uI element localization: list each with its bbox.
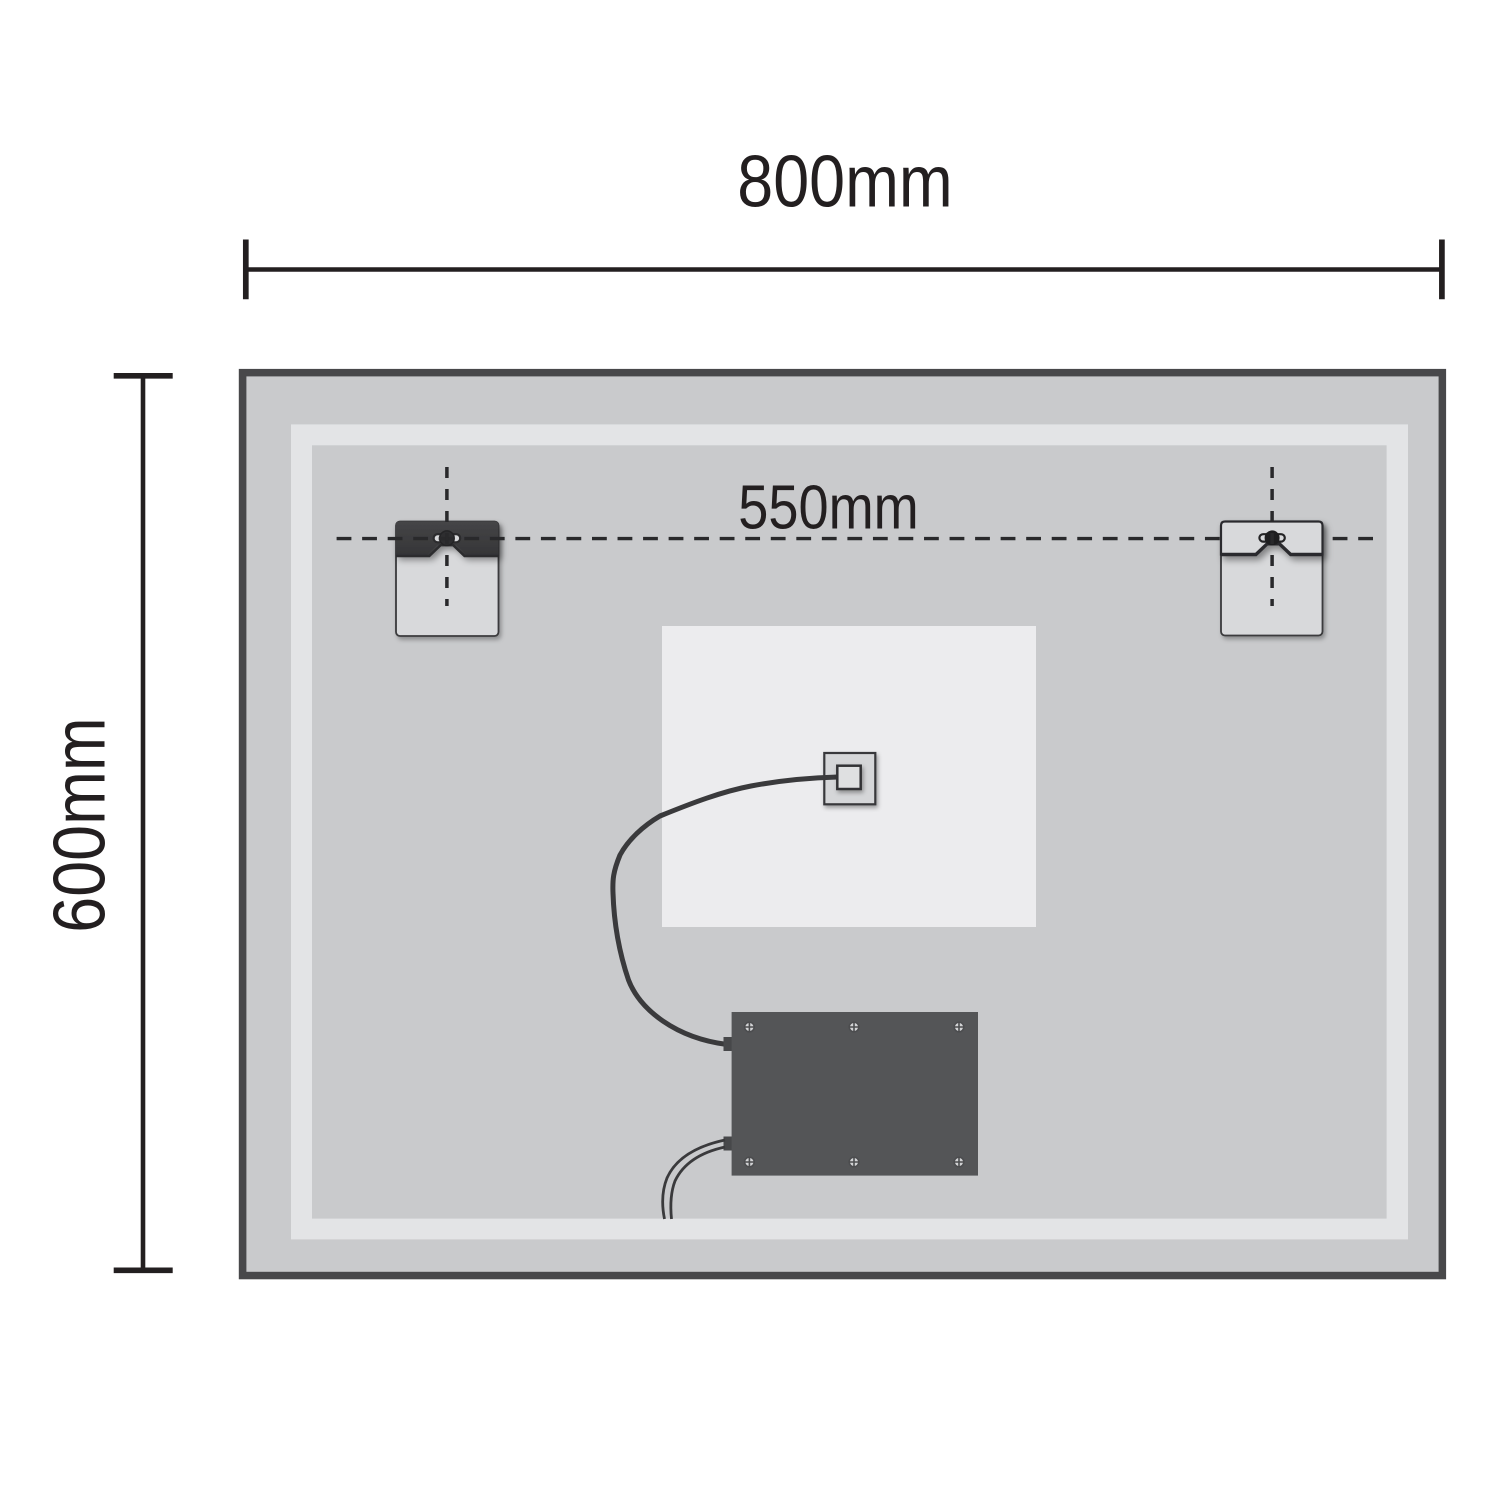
svg-text:800mm: 800mm bbox=[737, 141, 952, 223]
svg-text:600mm: 600mm bbox=[39, 717, 121, 932]
svg-text:550mm: 550mm bbox=[738, 473, 918, 542]
